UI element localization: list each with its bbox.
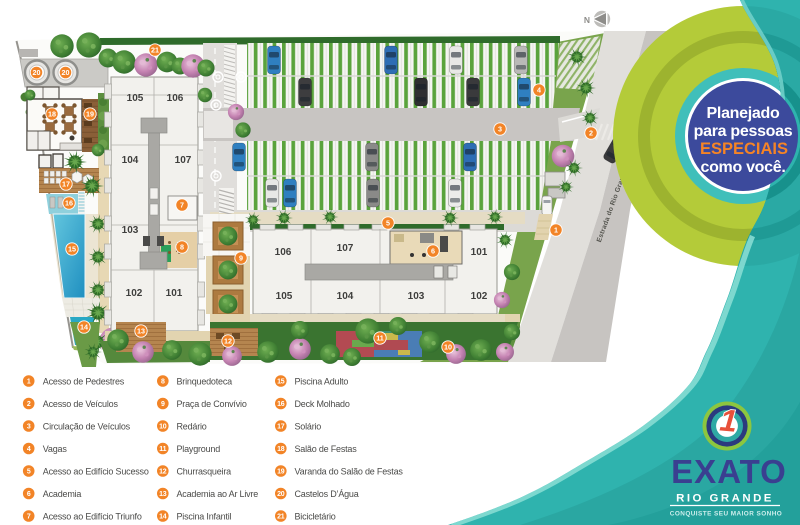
- svg-text:10: 10: [444, 343, 452, 352]
- svg-text:8: 8: [180, 243, 184, 252]
- svg-text:Varanda do Salão de Festas: Varanda do Salão de Festas: [295, 466, 404, 476]
- svg-text:Acesso de Veículos: Acesso de Veículos: [43, 399, 119, 409]
- svg-text:17: 17: [277, 424, 285, 431]
- svg-text:15: 15: [277, 379, 285, 386]
- svg-text:Redário: Redário: [177, 421, 207, 431]
- svg-text:102: 102: [126, 288, 143, 299]
- svg-text:Planejado: Planejado: [707, 105, 780, 122]
- svg-text:17: 17: [62, 180, 70, 189]
- svg-text:20: 20: [33, 68, 41, 77]
- svg-text:106: 106: [275, 247, 292, 258]
- svg-text:Acesso ao Edifício Sucesso: Acesso ao Edifício Sucesso: [43, 466, 149, 476]
- svg-text:10: 10: [159, 424, 167, 431]
- svg-text:EXATO: EXATO: [671, 453, 787, 490]
- svg-text:RIO GRANDE: RIO GRANDE: [676, 493, 774, 505]
- svg-text:Solário: Solário: [295, 421, 322, 431]
- svg-text:21: 21: [277, 514, 285, 521]
- svg-text:107: 107: [337, 243, 354, 254]
- svg-text:Deck Molhado: Deck Molhado: [295, 399, 350, 409]
- svg-text:1: 1: [554, 226, 558, 235]
- svg-text:19: 19: [277, 469, 285, 476]
- svg-text:Piscina Infantil: Piscina Infantil: [177, 511, 232, 521]
- svg-text:2: 2: [589, 129, 593, 138]
- svg-text:20: 20: [62, 68, 70, 77]
- svg-text:19: 19: [86, 110, 94, 119]
- svg-text:104: 104: [337, 291, 354, 302]
- svg-text:13: 13: [159, 491, 167, 498]
- svg-text:para pessoas: para pessoas: [694, 123, 793, 140]
- svg-text:103: 103: [408, 291, 425, 302]
- svg-text:16: 16: [65, 199, 73, 208]
- svg-text:21: 21: [151, 46, 159, 55]
- svg-text:Bicicletário: Bicicletário: [295, 511, 336, 521]
- svg-text:12: 12: [224, 337, 232, 346]
- svg-text:5: 5: [386, 219, 390, 228]
- svg-text:16: 16: [277, 401, 285, 408]
- svg-text:11: 11: [376, 334, 384, 343]
- svg-text:9: 9: [239, 254, 243, 263]
- svg-text:15: 15: [68, 245, 76, 254]
- svg-text:Salão de Festas: Salão de Festas: [295, 444, 358, 454]
- svg-text:3: 3: [498, 125, 502, 134]
- svg-text:14: 14: [159, 514, 167, 521]
- svg-text:106: 106: [167, 93, 184, 104]
- svg-text:Churrasqueira: Churrasqueira: [177, 466, 232, 476]
- svg-text:1: 1: [27, 379, 31, 386]
- svg-text:7: 7: [180, 201, 184, 210]
- svg-text:11: 11: [159, 446, 166, 453]
- svg-text:CONQUISTE SEU MAIOR SONHO: CONQUISTE SEU MAIOR SONHO: [670, 511, 782, 518]
- svg-text:4: 4: [27, 446, 31, 453]
- svg-text:Castelos D’Água: Castelos D’Água: [295, 489, 359, 499]
- svg-text:5: 5: [27, 469, 31, 476]
- svg-text:Academia: Academia: [43, 489, 82, 499]
- svg-text:101: 101: [166, 288, 183, 299]
- svg-text:Acesso de Pedestres: Acesso de Pedestres: [43, 376, 125, 386]
- svg-text:14: 14: [80, 323, 88, 332]
- svg-text:104: 104: [122, 155, 139, 166]
- svg-text:N: N: [584, 15, 590, 25]
- svg-text:102: 102: [471, 291, 488, 302]
- svg-text:Piscina Adulto: Piscina Adulto: [295, 376, 349, 386]
- svg-text:Playground: Playground: [177, 444, 221, 454]
- svg-text:105: 105: [276, 291, 293, 302]
- svg-text:como você.: como você.: [700, 159, 785, 176]
- svg-text:18: 18: [277, 446, 285, 453]
- svg-text:Circulação de Veículos: Circulação de Veículos: [43, 421, 131, 431]
- svg-text:103: 103: [122, 225, 139, 236]
- svg-text:Vagas: Vagas: [43, 444, 68, 454]
- svg-text:20: 20: [277, 491, 285, 498]
- svg-text:13: 13: [137, 327, 145, 336]
- svg-text:Academia ao Ar Livre: Academia ao Ar Livre: [177, 489, 259, 499]
- svg-text:2: 2: [27, 401, 31, 408]
- svg-text:7: 7: [27, 514, 31, 521]
- svg-text:6: 6: [27, 491, 31, 498]
- svg-text:ESPECIAIS: ESPECIAIS: [700, 140, 788, 158]
- svg-text:101: 101: [471, 247, 488, 258]
- svg-text:Praça de Convívio: Praça de Convívio: [177, 399, 247, 409]
- svg-text:Brinquedoteca: Brinquedoteca: [177, 376, 233, 386]
- svg-text:3: 3: [27, 424, 31, 431]
- svg-text:18: 18: [48, 110, 56, 119]
- svg-text:8: 8: [161, 379, 165, 386]
- svg-text:12: 12: [159, 469, 167, 476]
- svg-text:1: 1: [718, 402, 738, 438]
- svg-text:105: 105: [127, 93, 144, 104]
- svg-text:9: 9: [161, 401, 165, 408]
- svg-text:6: 6: [431, 247, 435, 256]
- svg-text:Acesso ao Edifício Triunfo: Acesso ao Edifício Triunfo: [43, 511, 142, 521]
- svg-text:4: 4: [537, 86, 541, 95]
- svg-text:107: 107: [175, 155, 192, 166]
